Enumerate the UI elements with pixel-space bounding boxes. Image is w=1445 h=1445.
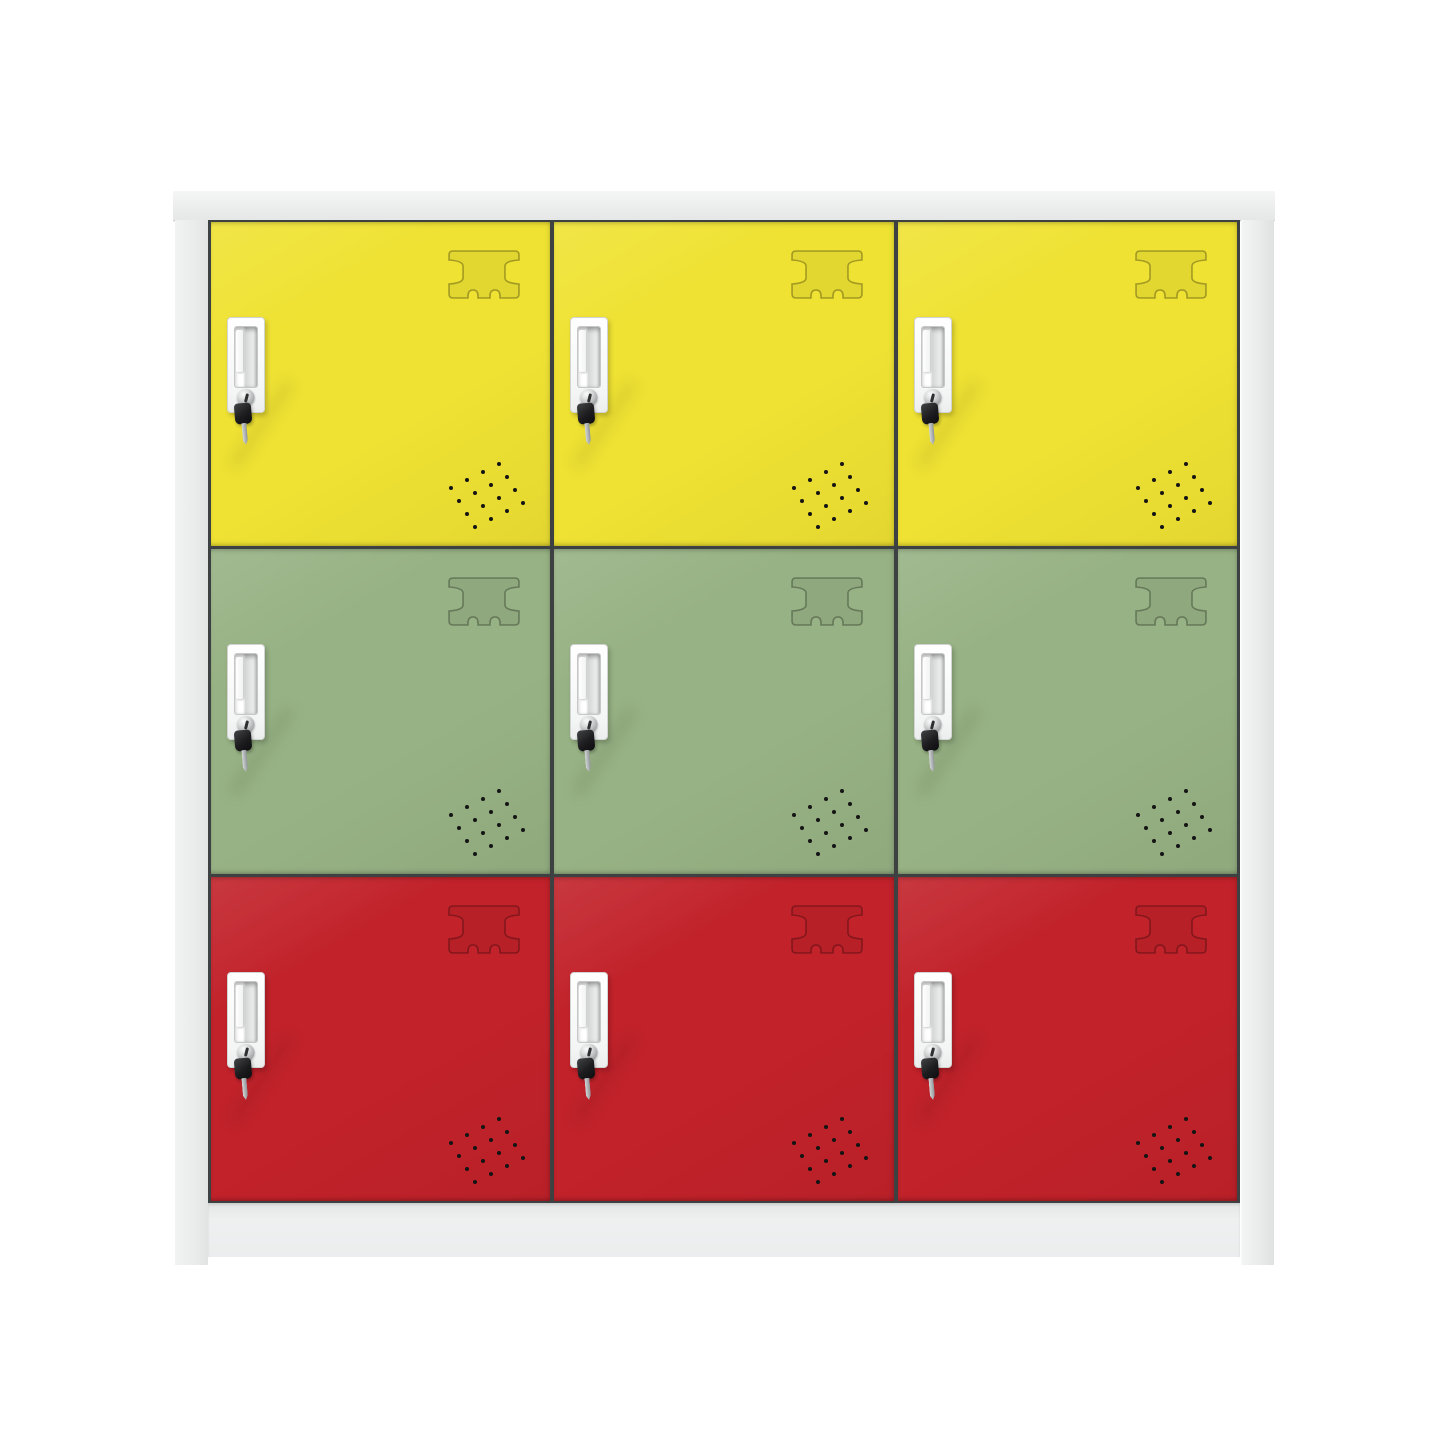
vent-hole <box>1152 839 1156 843</box>
vent-hole <box>1184 823 1188 827</box>
vent-hole <box>1136 1141 1140 1145</box>
keyway-slot-icon <box>243 720 248 729</box>
vent-hole <box>824 504 828 508</box>
vent-hole <box>457 1154 461 1158</box>
vent-hole <box>465 1167 469 1171</box>
vent-hole <box>481 1159 485 1163</box>
vent-hole <box>848 1164 852 1168</box>
vent-hole <box>497 1151 501 1155</box>
locker-door-r3c2 <box>554 877 893 1201</box>
vent-hole <box>816 818 820 822</box>
vent-hole <box>465 839 469 843</box>
vent-hole <box>457 826 461 830</box>
vent-hole <box>497 462 501 466</box>
vent-hole <box>864 828 868 832</box>
vent-hole <box>1168 1125 1172 1129</box>
key-head <box>577 730 596 752</box>
key-blade <box>241 750 248 772</box>
vent-hole <box>473 1180 477 1184</box>
locker-door-r1c3 <box>898 222 1237 546</box>
handle-latch <box>923 657 930 699</box>
label-holder-emboss-icon <box>791 905 863 954</box>
keyway-slot-icon <box>243 1047 248 1056</box>
vent-hole <box>481 797 485 801</box>
handle-latch <box>236 330 243 372</box>
locker-cabinet <box>173 191 1275 1265</box>
label-holder-emboss-icon <box>1135 905 1207 954</box>
vent-hole <box>800 1154 804 1158</box>
vent-hole <box>505 802 509 806</box>
key <box>234 730 255 773</box>
locker-door-r3c1 <box>211 877 550 1201</box>
vent-hole <box>497 789 501 793</box>
vent-hole <box>449 1141 453 1145</box>
vent-hole <box>824 1125 828 1129</box>
vent-hole <box>1192 836 1196 840</box>
handle-latch <box>579 985 586 1027</box>
vent-hole <box>864 501 868 505</box>
vent-hole <box>840 462 844 466</box>
vent-hole <box>1136 813 1140 817</box>
vent-hole <box>832 844 836 848</box>
vent-hole <box>465 1133 469 1137</box>
keyway-slot-icon <box>930 1047 935 1056</box>
handle-latch <box>236 657 243 699</box>
vent-hole <box>497 823 501 827</box>
key-head <box>920 402 939 424</box>
vent-hole <box>792 813 796 817</box>
vent-hole <box>457 499 461 503</box>
vent-hole <box>856 815 860 819</box>
key <box>234 402 255 445</box>
door-handle <box>914 644 952 740</box>
key-head <box>920 730 939 752</box>
vent-hole <box>1168 1159 1172 1163</box>
vent-hole <box>513 1143 517 1147</box>
key <box>234 1057 255 1100</box>
vent-hole <box>505 509 509 513</box>
locker-door-r3c3 <box>898 877 1237 1201</box>
vent-hole <box>824 797 828 801</box>
vent-hole <box>481 470 485 474</box>
label-holder-emboss-icon <box>1135 250 1207 299</box>
handle-recess <box>921 653 945 715</box>
vent-hole <box>792 1141 796 1145</box>
vent-hole <box>832 1172 836 1176</box>
vent-hole <box>521 501 525 505</box>
vent-hole <box>481 1125 485 1129</box>
door-handle <box>570 317 608 413</box>
door-handle <box>227 317 265 413</box>
key <box>920 402 941 445</box>
vent-hole <box>521 1156 525 1160</box>
vent-hole <box>1176 1172 1180 1176</box>
cabinet-base-panel <box>208 1203 1240 1257</box>
vent-hole <box>1168 470 1172 474</box>
vent-hole <box>505 836 509 840</box>
vent-hole <box>473 852 477 856</box>
vent-hole <box>848 836 852 840</box>
vent-hole <box>816 852 820 856</box>
key-head <box>234 1057 253 1079</box>
vent-hole <box>848 475 852 479</box>
key-head <box>234 730 253 752</box>
label-holder-emboss-icon <box>791 577 863 626</box>
vent-hole <box>1184 1151 1188 1155</box>
vent-hole <box>1184 462 1188 466</box>
vent-hole <box>848 802 852 806</box>
vent-hole <box>1176 483 1180 487</box>
handle-recess <box>921 326 945 388</box>
vent-hole <box>1168 504 1172 508</box>
vent-hole <box>521 828 525 832</box>
label-holder-emboss-icon <box>791 250 863 299</box>
vent-hole <box>497 496 501 500</box>
keyway-slot-icon <box>243 393 248 402</box>
vent-hole <box>465 478 469 482</box>
keyway-slot-icon <box>930 720 935 729</box>
vent-hole <box>1152 1133 1156 1137</box>
vent-hole <box>808 512 812 516</box>
handle-recess <box>577 981 601 1043</box>
vent-hole <box>1208 501 1212 505</box>
locker-door-r2c3 <box>898 549 1237 873</box>
key-blade <box>585 750 592 772</box>
vent-hole <box>489 483 493 487</box>
keyway-slot-icon <box>587 393 592 402</box>
handle-recess <box>234 653 258 715</box>
vent-hole <box>1192 475 1196 479</box>
handle-recess <box>577 653 601 715</box>
door-handle <box>914 972 952 1068</box>
vent-hole <box>848 509 852 513</box>
vent-hole <box>1168 797 1172 801</box>
vent-hole <box>481 504 485 508</box>
vent-hole <box>832 810 836 814</box>
vent-hole <box>832 1138 836 1142</box>
key <box>577 730 598 773</box>
locker-door-r2c2 <box>554 549 893 873</box>
vent-hole <box>824 1159 828 1163</box>
key-head <box>577 402 596 424</box>
vent-hole <box>1144 826 1148 830</box>
label-holder-emboss-icon <box>448 577 520 626</box>
handle-latch <box>923 330 930 372</box>
cabinet-side-panel-left <box>175 220 208 1265</box>
handle-recess <box>234 326 258 388</box>
vent-hole <box>1192 509 1196 513</box>
vent-hole <box>1192 802 1196 806</box>
vent-hole <box>1144 499 1148 503</box>
vent-hole <box>840 789 844 793</box>
vent-hole <box>856 1143 860 1147</box>
vent-hole <box>824 831 828 835</box>
vent-hole <box>1176 810 1180 814</box>
vent-hole <box>1160 1146 1164 1150</box>
vent-hole <box>1152 512 1156 516</box>
vent-hole <box>1176 517 1180 521</box>
vent-hole <box>856 488 860 492</box>
key <box>920 730 941 773</box>
vent-hole <box>1192 1130 1196 1134</box>
handle-recess <box>921 981 945 1043</box>
vent-hole <box>1152 1167 1156 1171</box>
key-blade <box>928 1077 935 1099</box>
locker-doors-grid <box>208 220 1240 1203</box>
vent-hole <box>1168 831 1172 835</box>
handle-latch <box>236 985 243 1027</box>
vent-hole <box>808 478 812 482</box>
vent-hole <box>1136 486 1140 490</box>
vent-hole <box>465 805 469 809</box>
vent-hole <box>505 475 509 479</box>
vent-hole <box>1160 1180 1164 1184</box>
vent-hole <box>808 1167 812 1171</box>
vent-hole <box>1160 852 1164 856</box>
vent-hole <box>1152 478 1156 482</box>
vent-hole <box>792 486 796 490</box>
vent-hole <box>840 496 844 500</box>
vent-hole <box>864 1156 868 1160</box>
key <box>577 402 598 445</box>
key-blade <box>241 1077 248 1099</box>
vent-hole <box>832 483 836 487</box>
key-blade <box>585 423 592 445</box>
vent-hole <box>473 818 477 822</box>
label-holder-emboss-icon <box>448 905 520 954</box>
vent-hole <box>800 826 804 830</box>
vent-hole <box>489 1172 493 1176</box>
handle-latch <box>579 657 586 699</box>
vent-hole <box>1192 1164 1196 1168</box>
locker-door-r1c2 <box>554 222 893 546</box>
vent-hole <box>449 813 453 817</box>
vent-hole <box>473 525 477 529</box>
vent-hole <box>840 1117 844 1121</box>
vent-hole <box>1200 815 1204 819</box>
vent-hole <box>513 815 517 819</box>
vent-hole <box>840 823 844 827</box>
keyway-slot-icon <box>930 393 935 402</box>
door-handle <box>914 317 952 413</box>
locker-door-r2c1 <box>211 549 550 873</box>
vent-hole <box>1200 1143 1204 1147</box>
handle-latch <box>923 985 930 1027</box>
label-holder-emboss-icon <box>1135 577 1207 626</box>
vent-hole <box>824 470 828 474</box>
vent-hole <box>489 517 493 521</box>
keyway-slot-icon <box>587 1047 592 1056</box>
vent-hole <box>505 1130 509 1134</box>
key-head <box>577 1057 596 1079</box>
door-handle <box>570 972 608 1068</box>
vent-hole <box>1176 1138 1180 1142</box>
key <box>577 1057 598 1100</box>
vent-hole <box>816 525 820 529</box>
vent-hole <box>1160 525 1164 529</box>
vent-hole <box>840 1151 844 1155</box>
keyway-slot-icon <box>587 720 592 729</box>
vent-hole <box>481 831 485 835</box>
vent-hole <box>1152 805 1156 809</box>
vent-hole <box>1160 491 1164 495</box>
vent-hole <box>1184 496 1188 500</box>
vent-hole <box>1200 488 1204 492</box>
vent-hole <box>1184 1117 1188 1121</box>
key-blade <box>241 423 248 445</box>
vent-hole <box>489 810 493 814</box>
key-blade <box>585 1077 592 1099</box>
cabinet-top-panel <box>173 191 1275 221</box>
vent-hole <box>1176 844 1180 848</box>
vent-hole <box>1208 1156 1212 1160</box>
vent-hole <box>1144 1154 1148 1158</box>
key-blade <box>928 423 935 445</box>
vent-hole <box>816 491 820 495</box>
key <box>920 1057 941 1100</box>
vent-hole <box>497 1117 501 1121</box>
vent-hole <box>505 1164 509 1168</box>
vent-hole <box>1184 789 1188 793</box>
handle-recess <box>577 326 601 388</box>
vent-hole <box>449 486 453 490</box>
door-handle <box>570 644 608 740</box>
vent-hole <box>489 844 493 848</box>
vent-hole <box>808 839 812 843</box>
product-photo-canvas <box>0 0 1445 1445</box>
vent-hole <box>473 1146 477 1150</box>
cabinet-side-panel-right <box>1241 220 1274 1265</box>
vent-hole <box>808 1133 812 1137</box>
vent-hole <box>489 1138 493 1142</box>
locker-door-r1c1 <box>211 222 550 546</box>
handle-recess <box>234 981 258 1043</box>
vent-hole <box>832 517 836 521</box>
vent-hole <box>816 1180 820 1184</box>
key-head <box>920 1057 939 1079</box>
vent-hole <box>513 488 517 492</box>
vent-hole <box>848 1130 852 1134</box>
vent-hole <box>800 499 804 503</box>
door-handle <box>227 972 265 1068</box>
vent-hole <box>1160 818 1164 822</box>
key-blade <box>928 750 935 772</box>
vent-hole <box>808 805 812 809</box>
handle-latch <box>579 330 586 372</box>
vent-hole <box>816 1146 820 1150</box>
key-head <box>234 402 253 424</box>
vent-hole <box>473 491 477 495</box>
label-holder-emboss-icon <box>448 250 520 299</box>
vent-hole <box>465 512 469 516</box>
vent-hole <box>1208 828 1212 832</box>
door-handle <box>227 644 265 740</box>
